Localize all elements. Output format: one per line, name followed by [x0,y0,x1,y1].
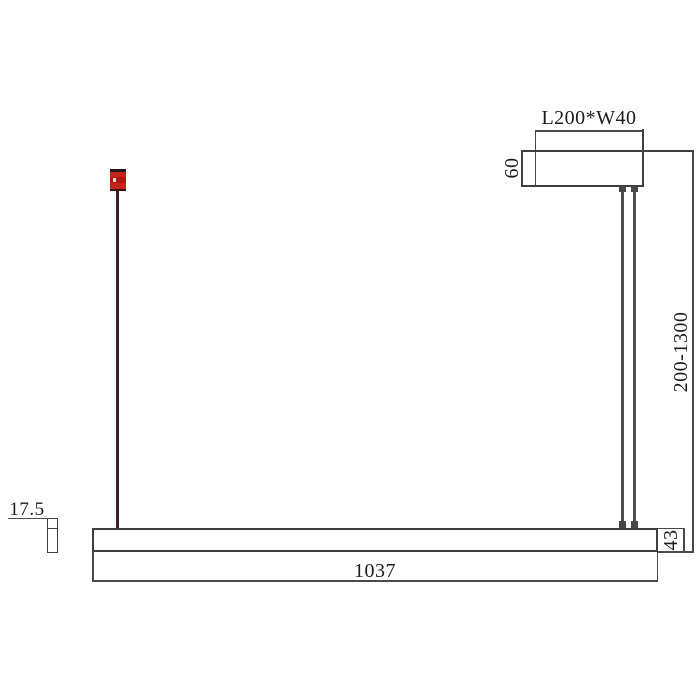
bar-length-witness-line-right [657,552,659,581]
red-connector-highlight-dot [113,178,116,182]
suspension-wire-left [621,192,624,521]
canopy-ceiling-line [521,150,693,152]
canopy-bottom-edge [521,185,644,187]
bar-height-label: 43 [661,530,681,551]
left-suspension-wire [116,191,119,528]
wire-bottom-connector-right [631,521,638,528]
canopy-size-label: L200*W40 [535,108,643,128]
bar-length-label: 1037 [275,561,475,581]
lamp-bar-outline [92,528,658,552]
bar-side-profile [47,518,58,553]
red-connector-top-cap [110,169,126,172]
canopy-right-edge [642,129,644,187]
bar-side-profile-divider [47,528,58,530]
canopy-size-witness-line-left [535,130,537,186]
canopy-size-dimension-line [535,130,643,132]
red-ceiling-connector [110,169,126,191]
wire-bottom-connector-left [619,521,626,528]
suspension-range-label: 200-1300 [671,312,691,393]
bar-height-extension-bottom [658,551,694,553]
bar-length-witness-line-left [92,552,94,581]
bar-height-dimension-line [683,528,685,552]
suspension-wire-right [633,192,636,521]
suspension-range-dimension-line [692,150,694,552]
profile-width-label: 17.5 [0,500,54,520]
canopy-height-label: 60 [502,158,522,179]
dimension-drawing-canvas: L200*W40 60 200-1300 1037 43 17.5 [0,0,700,700]
